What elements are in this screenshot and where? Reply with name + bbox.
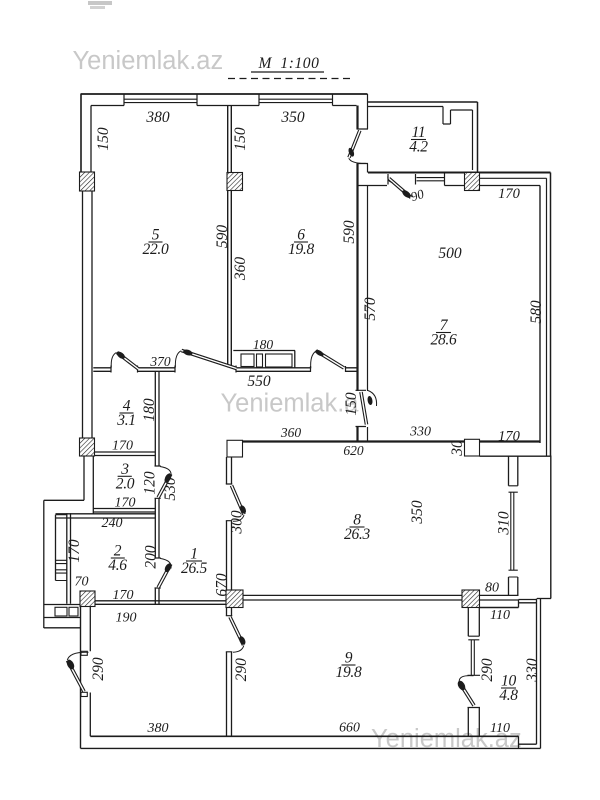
svg-text:570: 570 [362,297,379,321]
svg-text:3.1: 3.1 [116,412,135,429]
svg-text:530: 530 [162,477,179,501]
svg-text:300: 300 [229,510,246,535]
svg-text:380: 380 [147,721,169,736]
svg-text:M 1:100: M 1:100 [257,55,319,72]
svg-text:19.8: 19.8 [288,241,314,258]
svg-text:290: 290 [90,657,107,681]
svg-text:180: 180 [253,337,274,352]
svg-text:80: 80 [485,581,499,596]
svg-text:Yeniemlak.az: Yeniemlak.az [73,47,224,75]
svg-text:170: 170 [112,439,133,454]
svg-text:22.0: 22.0 [143,241,169,258]
svg-text:310: 310 [496,511,513,536]
svg-text:370: 370 [149,354,171,369]
svg-text:350: 350 [409,500,426,525]
svg-text:110: 110 [490,608,510,623]
svg-text:30: 30 [449,440,466,457]
svg-text:290: 290 [479,658,496,682]
svg-text:2.0: 2.0 [116,476,135,493]
svg-text:590: 590 [214,225,231,249]
svg-text:170: 170 [113,588,134,603]
svg-text:4.2: 4.2 [409,139,428,156]
svg-text:26.5: 26.5 [181,560,207,577]
svg-text:350: 350 [280,109,305,126]
svg-text:110: 110 [490,721,510,736]
svg-text:120: 120 [142,471,159,495]
svg-text:290: 290 [233,658,250,682]
svg-text:4.8: 4.8 [499,687,518,704]
svg-text:190: 190 [116,611,137,626]
svg-text:26.3: 26.3 [344,526,370,543]
svg-text:670: 670 [214,573,231,597]
svg-text:170: 170 [115,496,136,511]
svg-text:170: 170 [498,429,521,445]
svg-text:500: 500 [438,245,462,262]
svg-text:150: 150 [95,127,112,151]
svg-text:330: 330 [409,425,431,440]
svg-text:150: 150 [232,127,249,151]
svg-text:330: 330 [524,658,541,683]
svg-text:70: 70 [75,575,89,590]
svg-text:240: 240 [102,516,123,531]
svg-text:380: 380 [145,109,170,126]
svg-text:4.6: 4.6 [108,557,127,574]
svg-text:660: 660 [339,720,360,735]
svg-text:620: 620 [343,443,364,458]
svg-text:200: 200 [142,545,159,569]
svg-text:28.6: 28.6 [431,332,457,349]
svg-text:590: 590 [341,220,358,244]
svg-text:360: 360 [280,425,302,440]
svg-text:150: 150 [343,392,360,416]
svg-text:580: 580 [528,300,545,324]
svg-text:170: 170 [498,186,521,202]
svg-text:19.8: 19.8 [336,664,362,681]
svg-text:Yeniemlak.a: Yeniemlak.a [221,390,360,418]
svg-text:170: 170 [66,539,83,563]
svg-text:180: 180 [141,398,158,422]
svg-text:360: 360 [232,257,249,282]
svg-text:550: 550 [247,373,271,390]
